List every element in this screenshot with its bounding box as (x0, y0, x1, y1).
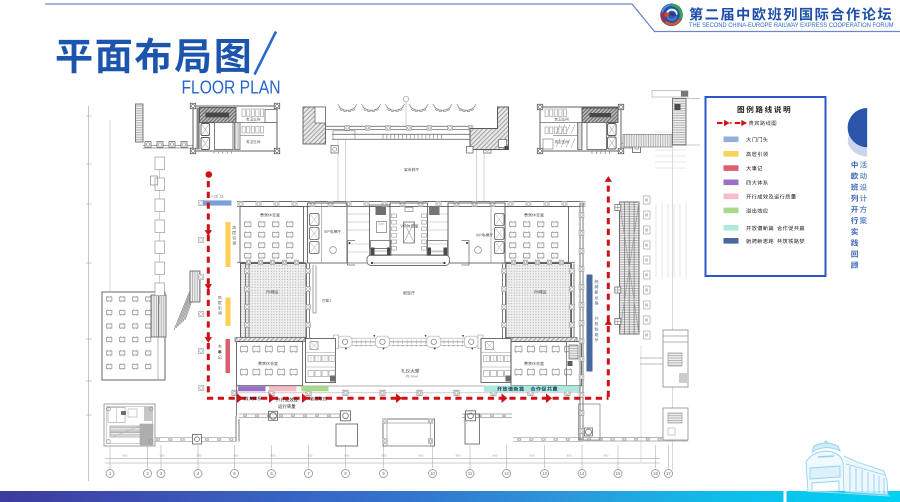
svg-text:900: 900 (308, 454, 313, 458)
svg-text:5: 5 (233, 471, 236, 476)
svg-text:900: 900 (456, 454, 461, 458)
svg-text:900: 900 (197, 454, 202, 458)
svg-text:900: 900 (419, 454, 424, 458)
svg-text:900: 900 (123, 454, 128, 458)
svg-text:1: 1 (109, 471, 112, 476)
svg-text:900: 900 (530, 454, 535, 458)
svg-text:9: 9 (382, 471, 385, 476)
svg-text:900: 900 (567, 454, 572, 458)
svg-text:17: 17 (666, 471, 671, 476)
svg-text:900: 900 (160, 454, 165, 458)
svg-text:13: 13 (542, 471, 547, 476)
svg-text:6: 6 (270, 471, 273, 476)
svg-text:4: 4 (197, 471, 200, 476)
svg-text:15: 15 (616, 471, 621, 476)
svg-text:10: 10 (430, 471, 435, 476)
svg-text:8: 8 (344, 471, 347, 476)
svg-text:16: 16 (653, 471, 658, 476)
svg-text:900: 900 (234, 454, 239, 458)
svg-text:900: 900 (345, 454, 350, 458)
svg-text:900: 900 (271, 454, 276, 458)
svg-text:11: 11 (468, 471, 473, 476)
svg-text:2: 2 (146, 471, 149, 476)
svg-text:900: 900 (382, 454, 387, 458)
svg-text:THE SECOND CHINA-EUROPE RAILWA: THE SECOND CHINA-EUROPE RAILWAY EXPRESS … (689, 22, 894, 29)
svg-text:12: 12 (504, 471, 509, 476)
svg-text:FLOOR PLAN: FLOOR PLAN (182, 78, 281, 98)
svg-text:3: 3 (160, 471, 163, 476)
svg-text:900: 900 (493, 454, 498, 458)
svg-text:900: 900 (604, 454, 609, 458)
svg-text:14: 14 (580, 471, 585, 476)
svg-text:7: 7 (307, 471, 310, 476)
